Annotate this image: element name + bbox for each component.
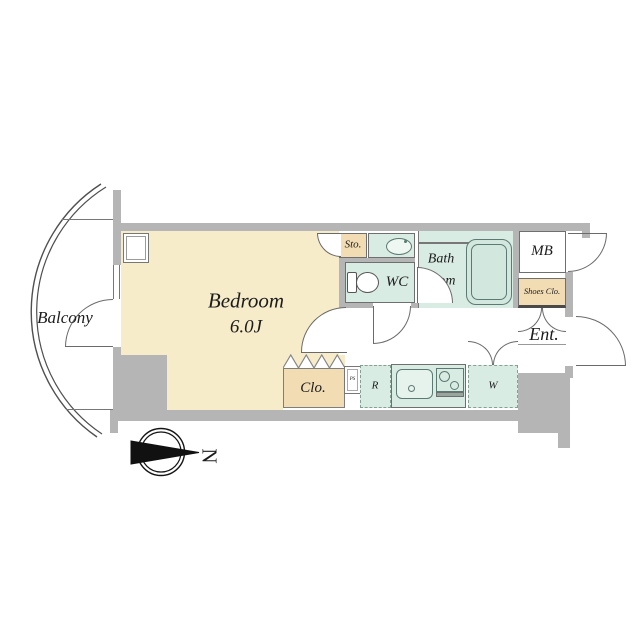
bedroom-label-name: Bedroom bbox=[208, 289, 284, 313]
bedroom-door-leaf bbox=[301, 352, 347, 353]
wall-entrance-block bbox=[518, 373, 570, 433]
bedroom-label: Bedroom 6.0J bbox=[208, 289, 284, 340]
washer-door-right-arc bbox=[493, 341, 518, 365]
refrigerator-label: R bbox=[372, 379, 379, 392]
washbasin-icon bbox=[386, 238, 412, 255]
floor-plan: Sto. WC Bath room MB Shoes Clo. Ent. Clo… bbox=[0, 0, 640, 640]
kitchen-sink-icon bbox=[396, 369, 433, 399]
pipe-space-label: PS bbox=[350, 377, 356, 383]
balcony-label: Balcony bbox=[37, 308, 93, 328]
bathroom-ledge-line bbox=[418, 242, 470, 244]
bathroom-label-line1: Bath bbox=[428, 251, 454, 266]
stove-burner-small-icon bbox=[450, 381, 459, 390]
stove-burner-large-icon bbox=[439, 371, 450, 382]
entrance-door-arc bbox=[576, 316, 626, 366]
meter-box-label: MB bbox=[531, 242, 553, 260]
window-symbol bbox=[123, 233, 149, 263]
bedroom-size-label: 6.0J bbox=[230, 317, 262, 338]
wc-door-arc bbox=[373, 306, 411, 344]
sink-drain-icon bbox=[408, 385, 415, 392]
wall-entrance-block-foot bbox=[558, 433, 570, 448]
wc-label: WC bbox=[386, 273, 409, 291]
closet-label: Clo. bbox=[300, 379, 325, 397]
toilet-bowl-icon bbox=[356, 272, 379, 293]
entrance-door-leaf bbox=[576, 365, 626, 366]
compass-north-label: N bbox=[196, 448, 221, 463]
bathtub-inner-line bbox=[471, 244, 507, 300]
bathtub-icon bbox=[466, 239, 512, 305]
bedroom-floor-lower bbox=[167, 355, 283, 410]
wall-top bbox=[113, 223, 590, 231]
window-symbol-inner bbox=[126, 236, 146, 260]
washer-door-left-arc bbox=[468, 341, 493, 365]
wall-block-bottom-left bbox=[113, 353, 167, 411]
meter-box-door-leaf bbox=[568, 233, 607, 234]
stove-front-bar bbox=[436, 392, 464, 397]
balcony-top-line bbox=[62, 219, 113, 220]
shoes-closet-label: Shoes Clo. bbox=[524, 286, 560, 296]
washer-label: W bbox=[488, 379, 497, 392]
wall-right-mid bbox=[565, 272, 573, 317]
bath-door-leaf bbox=[417, 267, 418, 303]
wc-door-leaf bbox=[373, 306, 374, 344]
meter-box-door-arc bbox=[568, 233, 607, 272]
storage-label: Sto. bbox=[345, 238, 362, 251]
balcony-bottom-line bbox=[66, 409, 113, 410]
faucet-dot-icon bbox=[404, 240, 407, 243]
closet-folding-door-icon bbox=[283, 354, 345, 369]
wall-wc-bottom-right bbox=[411, 303, 418, 308]
storage-door-leaf bbox=[317, 233, 341, 234]
